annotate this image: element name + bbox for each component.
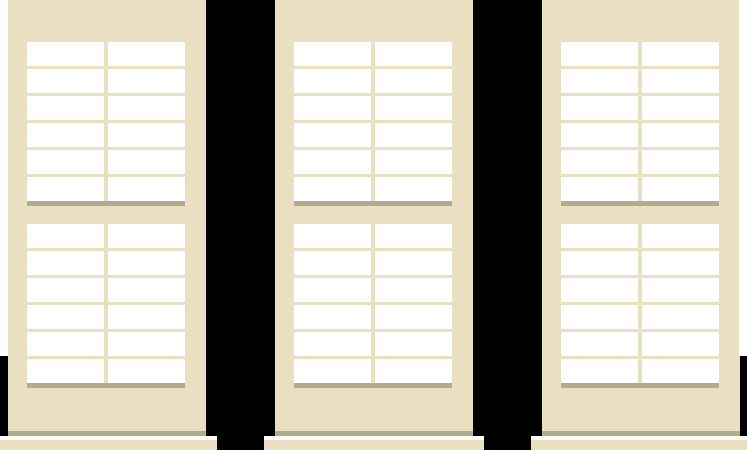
louver-slat — [642, 305, 719, 329]
louver-slat — [108, 359, 185, 383]
louver-slat — [642, 177, 719, 201]
louver-slat — [294, 96, 371, 120]
louver-slat — [108, 150, 185, 174]
window-sill — [531, 440, 747, 450]
louver-slat — [294, 150, 371, 174]
louver-slat — [375, 123, 452, 147]
louver-slat — [294, 123, 371, 147]
bottom-rail-shadow — [27, 383, 185, 388]
louver-slat — [561, 177, 638, 201]
louver-slat — [561, 224, 638, 248]
louver-slat — [27, 150, 104, 174]
louver-slat — [108, 224, 185, 248]
louver-slat — [108, 96, 185, 120]
divider-rail-shadow — [27, 201, 185, 206]
louver-slat — [375, 278, 452, 302]
louver-slat — [642, 96, 719, 120]
louver-slat — [294, 305, 371, 329]
louver-slat — [27, 305, 104, 329]
shutter-panel-3 — [542, 0, 740, 450]
window-sill — [0, 440, 217, 450]
divider-rail-shadow — [294, 201, 452, 206]
louver-slat — [561, 150, 638, 174]
louver-slat — [27, 278, 104, 302]
louver-slat — [561, 305, 638, 329]
shutter-panel-1 — [8, 0, 206, 450]
louver-slat — [27, 359, 104, 383]
window-sill — [264, 440, 484, 450]
louver-slat — [294, 251, 371, 275]
shutter-panel-2 — [275, 0, 473, 450]
louver-slat — [294, 359, 371, 383]
louver-slat — [375, 251, 452, 275]
louver-slat — [375, 177, 452, 201]
louver-slat — [642, 69, 719, 93]
louver-slat — [294, 42, 371, 66]
louver-slat — [108, 69, 185, 93]
louver-slat — [108, 42, 185, 66]
louver-slat — [27, 177, 104, 201]
louver-slat — [108, 177, 185, 201]
louver-slat — [375, 359, 452, 383]
louver-slat — [561, 123, 638, 147]
louver-slat — [375, 42, 452, 66]
left-edge-sliver — [0, 0, 8, 356]
louver-slat — [642, 251, 719, 275]
divider-rail-shadow — [561, 201, 719, 206]
louver-slat — [375, 150, 452, 174]
louver-slat — [375, 305, 452, 329]
louver-slat — [642, 42, 719, 66]
louver-slat — [27, 96, 104, 120]
louver-slat — [27, 224, 104, 248]
louver-slat — [27, 69, 104, 93]
louver-slat — [294, 278, 371, 302]
shutters-scene — [0, 0, 747, 450]
louver-slat — [375, 224, 452, 248]
louver-slat — [642, 224, 719, 248]
louver-slat — [108, 251, 185, 275]
louver-slat — [294, 69, 371, 93]
louver-slat — [561, 251, 638, 275]
louver-slat — [561, 96, 638, 120]
louver-slat — [561, 359, 638, 383]
louver-slat — [561, 332, 638, 356]
louver-slat — [642, 123, 719, 147]
bottom-rail-shadow — [561, 383, 719, 388]
louver-slat — [294, 332, 371, 356]
louver-slat — [27, 123, 104, 147]
louver-slat — [561, 69, 638, 93]
louver-slat — [294, 224, 371, 248]
louver-slat — [642, 359, 719, 383]
louver-slat — [108, 278, 185, 302]
louver-slat — [27, 251, 104, 275]
right-edge-sliver — [739, 0, 747, 356]
bottom-rail-shadow — [294, 383, 452, 388]
louver-slat — [561, 278, 638, 302]
louver-slat — [108, 305, 185, 329]
louver-slat — [294, 177, 371, 201]
louver-slat — [375, 96, 452, 120]
louver-slat — [27, 42, 104, 66]
louver-slat — [108, 123, 185, 147]
louver-slat — [642, 278, 719, 302]
louver-slat — [27, 332, 104, 356]
louver-slat — [642, 150, 719, 174]
louver-slat — [375, 69, 452, 93]
louver-slat — [108, 332, 185, 356]
louver-slat — [375, 332, 452, 356]
louver-slat — [642, 332, 719, 356]
louver-slat — [561, 42, 638, 66]
